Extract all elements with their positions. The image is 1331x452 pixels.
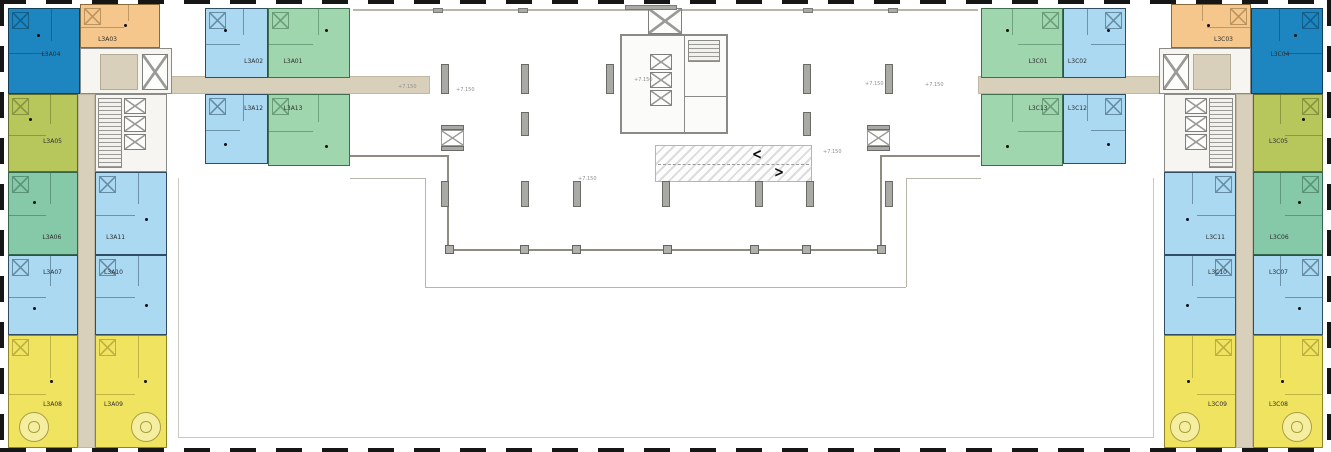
unit-label: L3C08 [1269,402,1288,408]
core-center-partition [684,96,728,97]
deck-railing [880,155,980,157]
level-annotation: +7.150 [925,83,944,88]
column-dot-icon [1298,201,1301,204]
column-dot-icon [50,380,53,383]
round-planter-icon [1170,412,1200,442]
column-dot-icon [224,143,227,146]
bed-icon [1302,12,1319,29]
unit-partition [138,336,139,378]
core-right-lobby [1193,54,1231,90]
unit-partition [50,336,51,378]
unit-partition [1202,5,1203,21]
level-annotation: +7.150 [456,88,475,93]
level-annotation: +7.150 [634,78,653,83]
unit-partition [206,130,240,131]
bed-icon [12,12,29,29]
deck-column [441,181,449,207]
parking-ramp: < > [655,145,812,182]
bed-icon [1302,259,1319,276]
elevator-icon [124,134,146,150]
property-line-bottom [0,448,1331,452]
unit-label: L3C09 [1208,402,1227,408]
bed-icon [1105,12,1122,29]
property-line-right [1327,0,1331,452]
deck-column [803,112,811,136]
unit-L3C02[interactable]: L3C02 [1063,8,1126,78]
floor-plan: < > L3A04L3A03L3A02L3A01L3A12L3A13L3A05L… [0,0,1331,452]
courtyard-edge-bottom [178,437,1153,438]
deck-column [521,64,529,94]
column-dot-icon [37,34,40,37]
deck-column [441,64,449,94]
deck-column [521,112,529,136]
unit-L3A03[interactable]: L3A03 [80,4,160,48]
column-dot-icon [145,304,148,307]
elevator-icon [1163,54,1189,90]
unit-partition [128,5,129,21]
unit-L3C06[interactable]: L3C06 [1253,172,1323,255]
deck-edge [906,178,907,287]
column-dot-icon [1187,380,1190,383]
column-dot-icon [1186,304,1189,307]
unit-L3C13[interactable]: L3C13 [981,94,1063,166]
unit-label: L3A04 [42,52,61,58]
unit-label: L3A01 [284,59,303,65]
deck-edge [906,178,981,179]
column-dot-icon [124,24,127,27]
unit-partition [9,135,46,136]
deck-column [806,181,814,207]
round-planter-icon [1282,412,1312,442]
bed-icon [1215,339,1232,356]
railing-post [750,245,759,254]
bed-icon [12,339,29,356]
unit-L3A04[interactable]: L3A04 [8,8,80,94]
unit-partition [9,394,46,395]
bed-icon [1215,176,1232,193]
unit-partition [9,297,46,298]
unit-partition [51,9,52,41]
unit-label: L3C12 [1068,106,1087,112]
column-dot-icon [1006,29,1009,32]
unit-label: L3C13 [1029,106,1048,112]
bed-icon [1302,98,1319,115]
column-dot-icon [33,307,36,310]
level-annotation: +7.150 [578,177,597,182]
unit-label: L3C02 [1068,59,1087,65]
ramp-centerline [658,164,809,165]
unit-partition [1285,297,1322,298]
unit-L3A05[interactable]: L3A05 [8,94,78,172]
unit-L3A07[interactable]: L3A07 [8,255,78,335]
unit-partition [1087,9,1088,35]
elevator-icon [1185,116,1207,132]
column-dot-icon [325,29,328,32]
column-dot-icon [1298,307,1301,310]
unit-partition [1280,173,1281,204]
unit-partition [1285,215,1322,216]
shaft-box-cross [867,130,890,146]
unit-L3A13[interactable]: L3A13 [268,94,350,166]
elevator-icon [1185,134,1207,150]
wall-segment [433,8,443,13]
unit-partition [1192,256,1193,286]
unit-L3C01[interactable]: L3C01 [981,8,1063,78]
round-planter-inner [1291,421,1302,432]
unit-partition [1197,297,1236,298]
unit-partition [1207,27,1250,28]
unit-partition [269,44,313,45]
unit-partition [1087,95,1088,121]
column-dot-icon [1107,29,1110,32]
unit-partition [1279,9,1280,41]
level-annotation: +7.150 [865,82,884,87]
column-dot-icon [144,380,147,383]
courtyard-edge-right [1153,178,1154,438]
bed-icon [1042,12,1059,29]
deck-edge [425,178,426,287]
bed-icon [12,176,29,193]
unit-partition [318,9,319,35]
column-dot-icon [29,118,32,121]
round-planter-inner [1179,421,1190,432]
bed-icon [99,339,116,356]
unit-label: L3C05 [1269,139,1288,145]
deck-column [606,64,614,94]
unit-label: L3A05 [43,139,62,145]
elevator-icon [142,54,168,90]
elevator-icon [650,72,672,88]
railing-post [572,245,581,254]
deck-column [521,181,529,207]
corridor-right-vertical [1236,94,1253,448]
core-center-partition [684,34,685,134]
unit-partition [50,173,51,204]
unit-partition [1091,130,1125,131]
shaft-box-bar [441,146,464,151]
unit-label: L3C01 [1029,59,1048,65]
unit-L3A10[interactable]: L3A10 [95,255,167,335]
wall-segment [888,8,898,13]
unit-L3A12[interactable]: L3A12 [205,94,268,164]
unit-label: L3C03 [1214,37,1233,43]
unit-label: L3A02 [244,59,263,65]
unit-label: L3A08 [43,402,62,408]
unit-label: L3A07 [43,270,62,276]
unit-L3C03[interactable]: L3C03 [1171,4,1251,48]
unit-partition [138,256,139,286]
column-dot-icon [1006,145,1009,148]
unit-partition [1192,173,1193,204]
stairs-left [98,98,122,168]
column-dot-icon [1294,34,1297,37]
unit-partition [1285,394,1322,395]
corridor-left-vertical [78,94,95,448]
round-planter-inner [28,421,39,432]
column-dot-icon [1207,24,1210,27]
round-planter-icon [19,412,49,442]
column-dot-icon [33,201,36,204]
unit-label: L3A11 [106,235,125,241]
bed-icon [1230,8,1247,25]
unit-label: L3A10 [104,270,123,276]
round-planter-inner [140,421,151,432]
wall-segment [803,8,813,13]
column-dot-icon [1281,380,1284,383]
elevator-icon [650,90,672,106]
shaft-box-icon [867,125,890,151]
unit-label: L3C10 [1208,270,1227,276]
bed-icon [1302,339,1319,356]
unit-partition [318,95,319,122]
property-line-left [0,0,4,452]
shaft-box-bar [867,146,890,151]
unit-label: L3A09 [104,402,123,408]
column-dot-icon [1186,218,1189,221]
unit-L3A11[interactable]: L3A11 [95,172,167,255]
bed-icon [1105,98,1122,115]
unit-partition [1012,95,1013,122]
railing-post [663,245,672,254]
deck-column [573,181,581,207]
bed-icon [209,12,226,29]
unit-partition [9,215,46,216]
courtyard-edge-left [178,178,179,438]
unit-L3C07[interactable]: L3C07 [1253,255,1323,335]
unit-L3C04[interactable]: L3C04 [1251,8,1323,94]
unit-partition [1280,336,1281,378]
unit-L3A02[interactable]: L3A02 [205,8,268,78]
elevator-icon [1185,98,1207,114]
elevator-icon [650,54,672,70]
deck-railing [880,155,882,251]
unit-label: L3C11 [1206,235,1225,241]
unit-L3A01[interactable]: L3A01 [268,8,350,78]
unit-partition [1197,215,1236,216]
unit-L3C12[interactable]: L3C12 [1063,94,1126,164]
unit-label: L3A06 [42,235,61,241]
unit-partition [1091,44,1125,45]
core-left-lobby [100,54,138,90]
elevator-icon [124,98,146,114]
unit-L3C10[interactable]: L3C10 [1164,255,1236,335]
unit-label: L3C04 [1271,52,1290,58]
deck-column [803,64,811,94]
unit-label: L3C07 [1269,270,1288,276]
bed-icon [99,176,116,193]
unit-partition [1285,135,1322,136]
unit-L3C11[interactable]: L3C11 [1164,172,1236,255]
level-annotation: +7.150 [823,150,842,155]
unit-label: L3A13 [284,106,303,112]
round-planter-icon [131,412,161,442]
unit-label: L3A03 [98,37,117,43]
column-dot-icon [1302,118,1305,121]
ramp-arrow-in-icon: < [752,147,762,162]
column-dot-icon [1107,143,1110,146]
bed-icon [1302,176,1319,193]
unit-label: L3A12 [244,106,263,112]
bed-icon [209,98,226,115]
deck-edge [425,287,906,288]
unit-partition [96,297,135,298]
shaft-box-cross [441,130,464,146]
shaft-box-icon [441,125,464,151]
unit-partition [269,131,313,132]
unit-partition [1280,95,1281,124]
railing-post [802,245,811,254]
property-line-top [0,0,1331,4]
deck-column [755,181,763,207]
column-dot-icon [224,29,227,32]
wall-segment [518,8,528,13]
deck-edge [350,178,425,179]
bed-icon [84,8,101,25]
deck-column [662,181,670,207]
unit-partition [96,215,135,216]
column-dot-icon [325,145,328,148]
elevator-icon [124,116,146,132]
deck-column [885,181,893,207]
deck-column [885,64,893,94]
railing-post [445,245,454,254]
bed-icon [272,12,289,29]
unit-L3A06[interactable]: L3A06 [8,172,78,255]
unit-partition [138,173,139,204]
ramp-arrow-out-icon: > [774,165,784,180]
unit-L3C05[interactable]: L3C05 [1253,94,1323,172]
unit-partition [1197,394,1236,395]
railing-post [520,245,529,254]
stairs-center [688,40,720,62]
unit-partition [243,9,244,35]
unit-partition [1012,9,1013,35]
unit-partition [50,95,51,124]
unit-partition [96,394,135,395]
stairs-right [1209,98,1233,168]
unit-label: L3C06 [1270,235,1289,241]
unit-partition [1018,44,1062,45]
unit-partition [81,27,124,28]
railing-post [877,245,886,254]
column-dot-icon [145,218,148,221]
deck-railing [348,155,447,157]
skylight-shaft-icon [648,8,682,34]
unit-partition [1018,131,1062,132]
bed-icon [12,98,29,115]
wall-segment [625,5,677,10]
level-annotation: +7.150 [398,85,417,90]
unit-partition [206,44,240,45]
bed-icon [12,259,29,276]
unit-partition [1192,336,1193,378]
